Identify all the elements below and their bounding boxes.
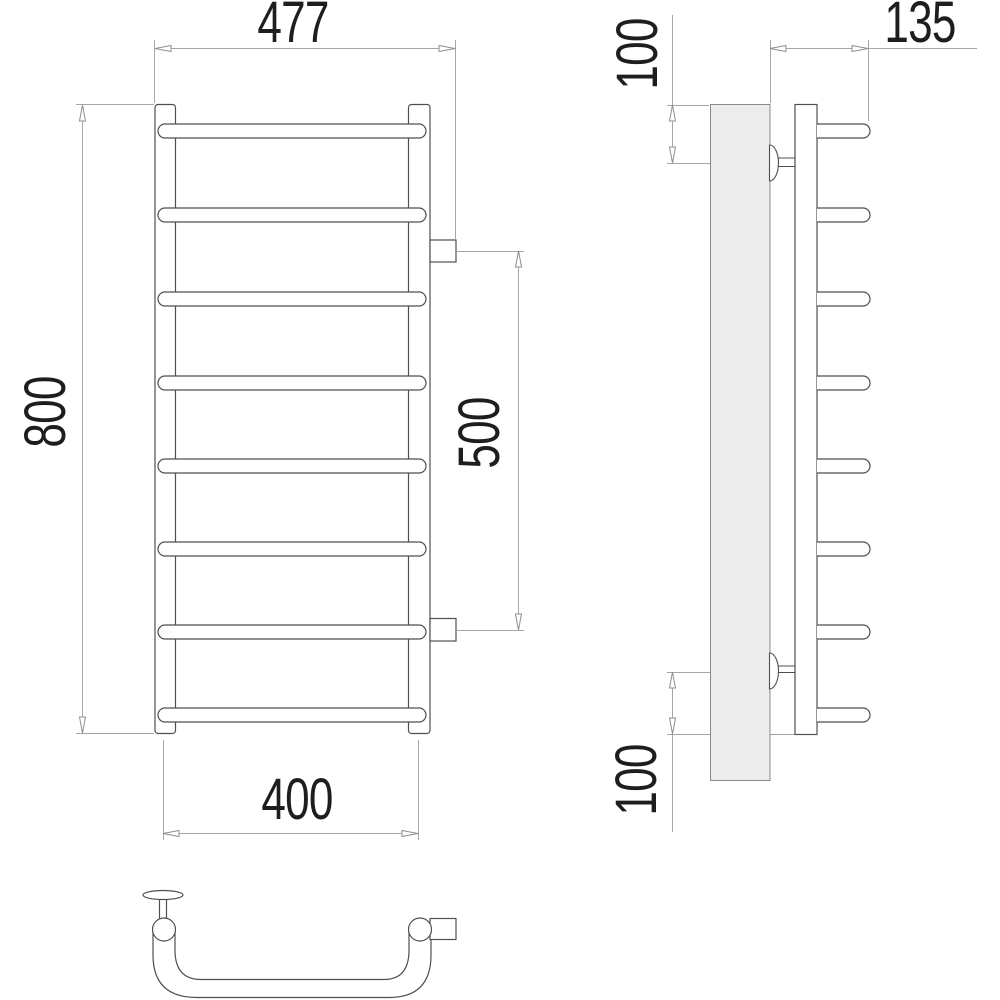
dim-label-rung-center-width: 400: [261, 771, 332, 829]
plan-left-collector: [153, 918, 176, 941]
plan-right-collector: [409, 918, 432, 941]
side-rung-8: [817, 708, 870, 722]
technical-drawing-canvas: 477 135 800 500 100 100 400: [0, 0, 1000, 1000]
rung-8: [158, 708, 426, 722]
rung-curve-outer: [153, 927, 431, 998]
rung-5: [158, 459, 426, 473]
side-rung-6: [817, 542, 870, 556]
rung-2: [158, 208, 426, 222]
top-bracket-stem: [778, 158, 795, 167]
side-view: [711, 105, 871, 781]
rung-6: [158, 542, 426, 556]
side-rung-5: [817, 459, 870, 473]
top-bracket-flange: [770, 145, 779, 181]
plan-bracket-flange: [143, 891, 183, 900]
wall-brackets: [770, 145, 796, 689]
side-rung-4: [817, 376, 870, 390]
front-rungs: [158, 124, 426, 722]
towel-rail-drawing: [0, 0, 1000, 1000]
front-upper-connection: [430, 240, 456, 262]
side-rung-2: [817, 208, 870, 222]
wall-panel: [711, 105, 771, 781]
rung-1: [158, 124, 426, 138]
plan-bracket-stem: [160, 899, 167, 919]
side-rungs: [817, 124, 870, 722]
front-view: [155, 105, 456, 734]
side-rung-3: [817, 292, 870, 306]
rung-3: [158, 292, 426, 306]
plan-side-connection: [430, 919, 456, 940]
dim-label-bottom-mount-offset: 100: [608, 744, 666, 815]
bottom-bracket-stem: [778, 666, 795, 673]
front-lower-connection: [430, 619, 456, 642]
rung-curve-inner: [175, 927, 409, 980]
rung-7: [158, 625, 426, 639]
dim-label-depth: 135: [884, 0, 955, 52]
dim-label-connection-spacing: 500: [451, 397, 509, 468]
bottom-bracket-flange: [770, 653, 779, 689]
bottom-view: [143, 891, 456, 998]
dim-label-overall-width: 477: [257, 0, 328, 52]
rung-4: [158, 376, 426, 390]
side-rail: [795, 105, 817, 735]
side-rung-7: [817, 625, 870, 639]
dim-label-height: 800: [17, 376, 75, 447]
side-rung-1: [817, 124, 870, 138]
dim-label-top-mount-offset: 100: [609, 18, 667, 89]
